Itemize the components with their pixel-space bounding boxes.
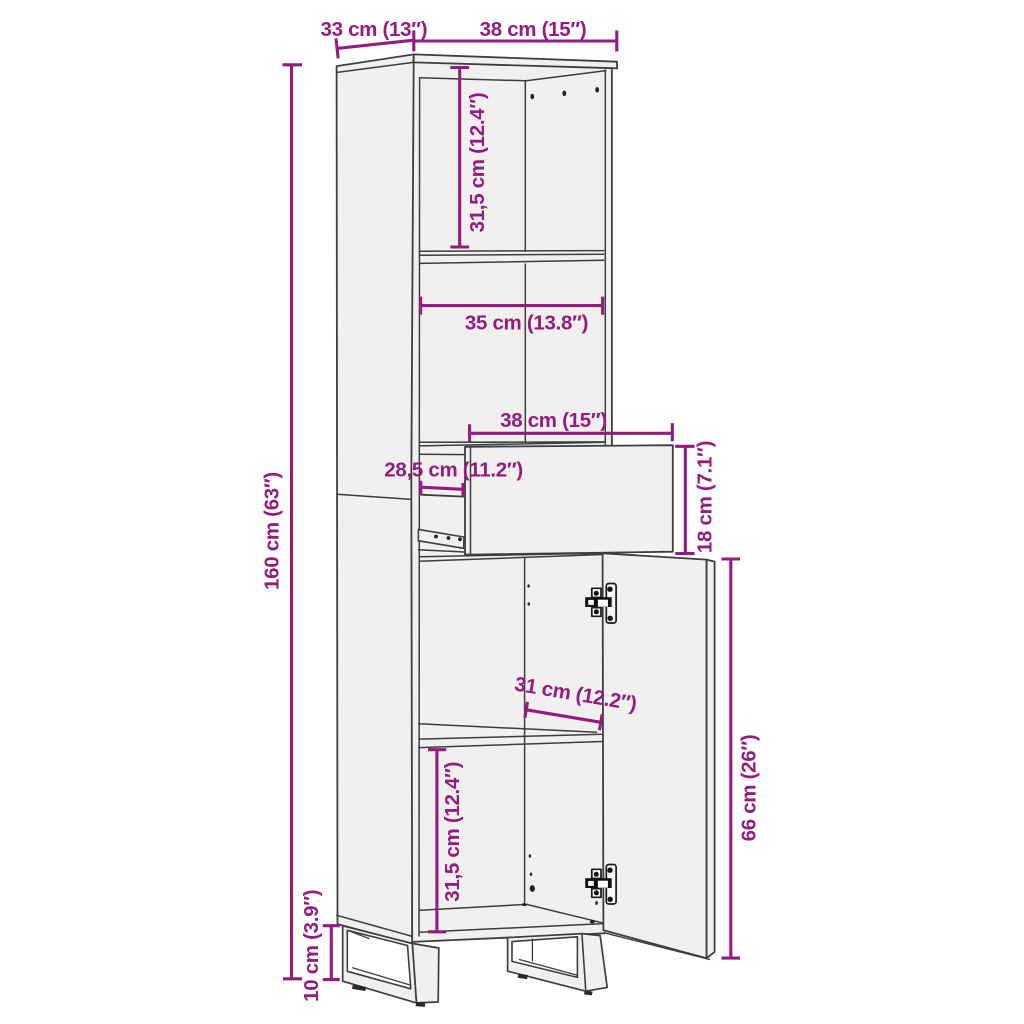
svg-text:160 cm (63″): 160 cm (63″) — [260, 472, 283, 590]
svg-text:31,5 cm (12.4″): 31,5 cm (12.4″) — [441, 762, 464, 902]
svg-text:38 cm (15″): 38 cm (15″) — [500, 409, 607, 432]
svg-text:33 cm (13″): 33 cm (13″) — [320, 18, 427, 41]
svg-text:66 cm (26″): 66 cm (26″) — [737, 735, 760, 842]
svg-text:18 cm (7.1″): 18 cm (7.1″) — [694, 441, 717, 553]
svg-text:31,5 cm (12.4″): 31,5 cm (12.4″) — [466, 93, 489, 233]
svg-text:10 cm (3.9″): 10 cm (3.9″) — [300, 890, 323, 1002]
svg-text:38 cm (15″): 38 cm (15″) — [480, 18, 587, 41]
svg-text:35 cm (13.8″): 35 cm (13.8″) — [465, 312, 588, 335]
svg-text:28,5 cm (11.2″): 28,5 cm (11.2″) — [384, 459, 523, 482]
